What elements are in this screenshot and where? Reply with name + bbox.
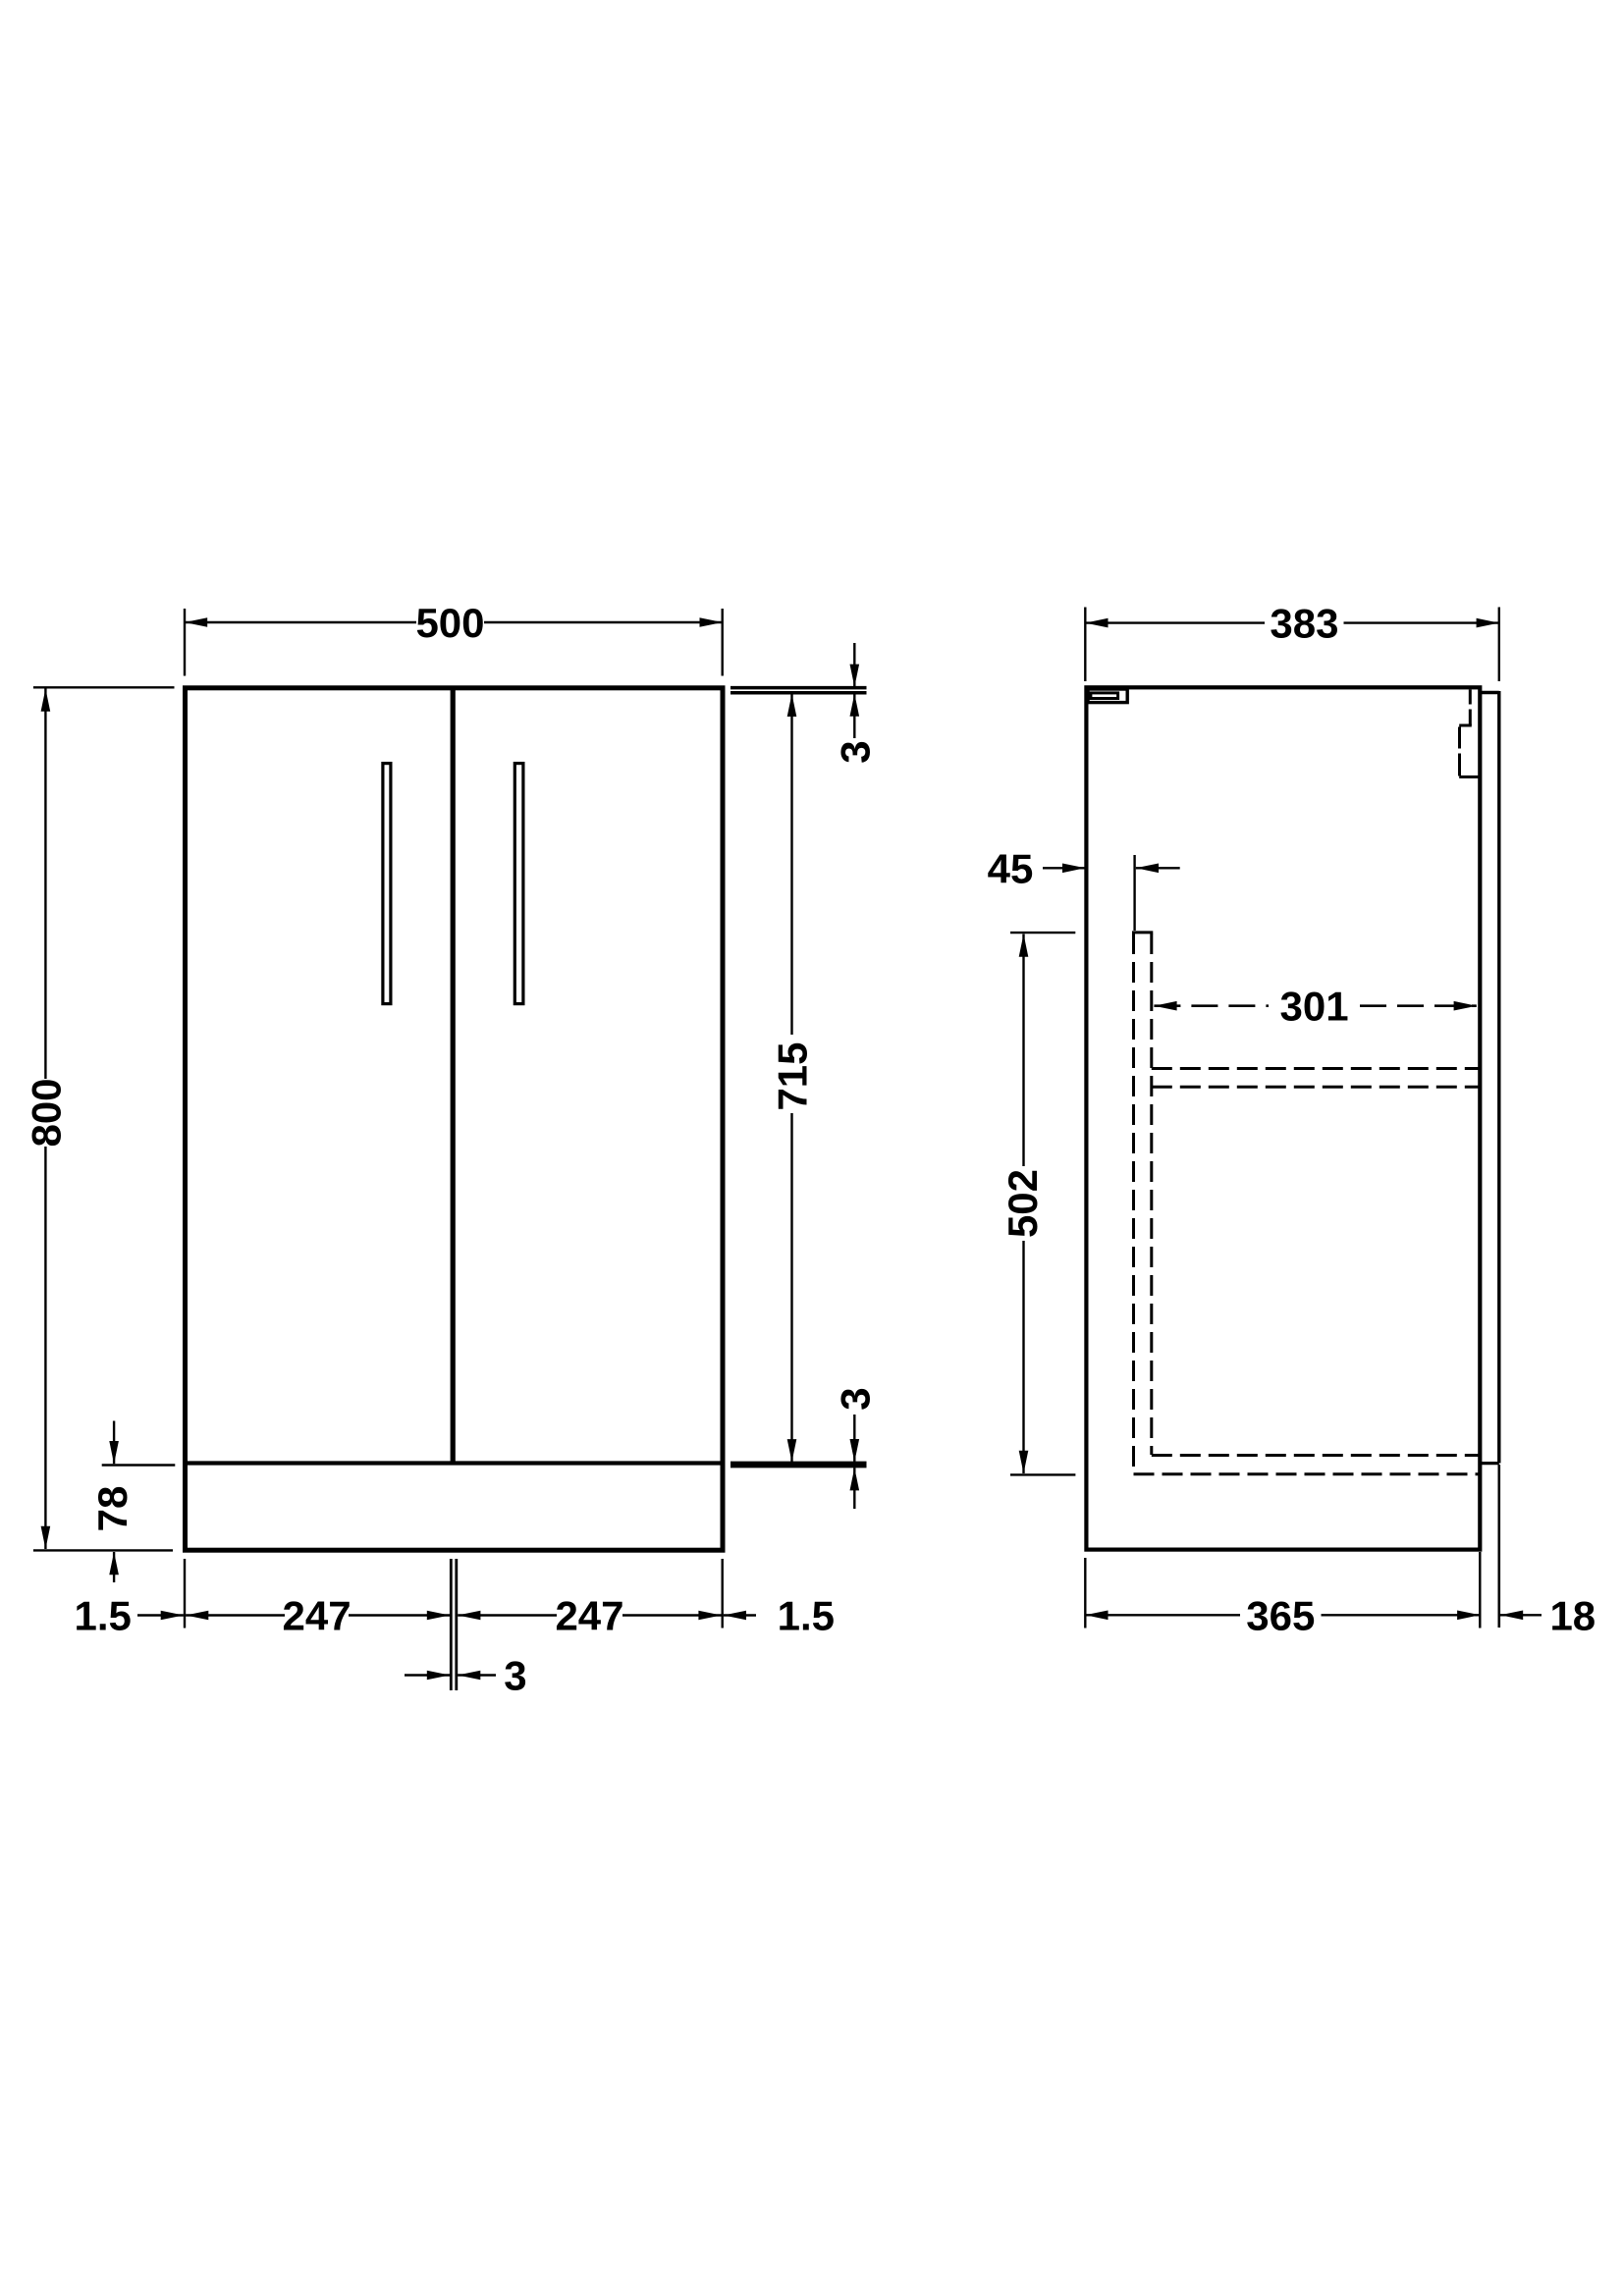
svg-text:247: 247 [555,1593,623,1639]
svg-text:3: 3 [504,1653,526,1699]
svg-text:500: 500 [415,600,484,646]
svg-text:383: 383 [1270,601,1338,647]
svg-text:1.5: 1.5 [75,1593,132,1639]
svg-text:3: 3 [832,1387,878,1410]
svg-text:78: 78 [89,1486,135,1532]
svg-text:18: 18 [1549,1592,1596,1638]
svg-text:1.5: 1.5 [778,1593,835,1639]
svg-text:715: 715 [770,1041,816,1110]
svg-text:45: 45 [988,845,1034,891]
svg-text:247: 247 [283,1593,352,1639]
svg-text:502: 502 [1000,1169,1046,1238]
svg-text:301: 301 [1280,984,1349,1030]
svg-text:800: 800 [23,1078,69,1147]
svg-text:3: 3 [832,740,878,763]
svg-text:365: 365 [1246,1592,1315,1638]
